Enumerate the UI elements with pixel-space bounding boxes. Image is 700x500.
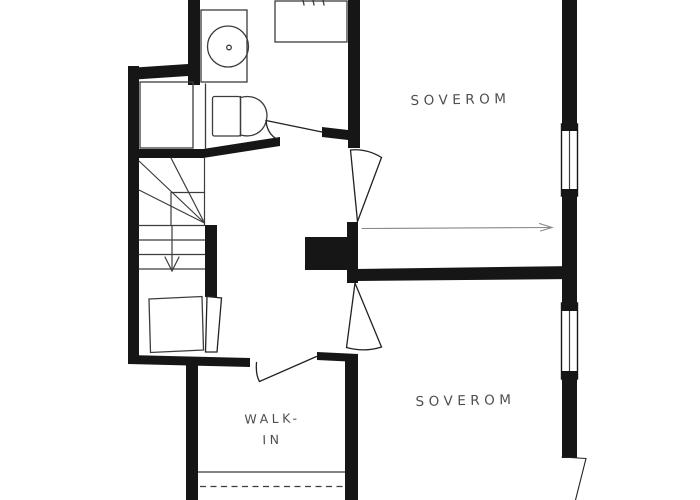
chimney-block: [305, 237, 355, 270]
wardrobe-lines: [198, 472, 345, 487]
toilet-icon: [206, 84, 268, 148]
wall-walkin-left: [186, 360, 198, 500]
winder-staircase-down-arrow-icon: [139, 158, 205, 271]
floor-plan: SOVEROM SOVEROM WALK- IN: [0, 0, 700, 500]
wall-bath-door-stub: [322, 127, 348, 140]
room-label-walk-in-line1: WALK-: [220, 410, 325, 429]
bedroom-bottom-door-swing: [347, 283, 382, 350]
bedroom-top-door-swing: [351, 150, 382, 222]
room-label-bedroom-top: SOVEROM: [403, 90, 518, 111]
closet-niche: [140, 82, 193, 148]
floor-plan-drawing: [0, 0, 700, 500]
stair-room-door-leaf: [206, 297, 222, 353]
shower-icon: [275, 0, 347, 42]
wall-left-outer: [128, 66, 139, 364]
wall-right-top: [562, 0, 577, 124]
wall-walkin-right: [345, 354, 358, 500]
direction-arrow: [362, 224, 552, 232]
window-icon-bedroom-top: [562, 124, 578, 196]
room-label-bedroom-bottom: SOVEROM: [408, 391, 523, 412]
exterior-door-swing: [562, 457, 586, 500]
wall-bath-south-diagonal: [203, 137, 280, 158]
window-icon-bedroom-bottom: [562, 303, 578, 379]
wall-hall-stairs: [205, 225, 217, 297]
stairs-down-arrow: [165, 226, 179, 271]
wall-top-left-stub: [188, 0, 200, 85]
walk-in-door-swing: [256, 357, 316, 382]
walls: [128, 0, 577, 500]
bathroom-door-swing: [266, 121, 322, 140]
wall-bath-stairs-divider: [138, 149, 204, 158]
wall-right-low: [562, 378, 577, 458]
wall-right-mid: [562, 196, 577, 304]
vanity-sink-icon: [201, 10, 249, 82]
wall-bathroom-right: [348, 0, 360, 148]
room-label-walk-in-line2: IN: [220, 431, 325, 450]
storage-box: [149, 297, 204, 353]
wall-between-bedrooms: [355, 266, 577, 281]
